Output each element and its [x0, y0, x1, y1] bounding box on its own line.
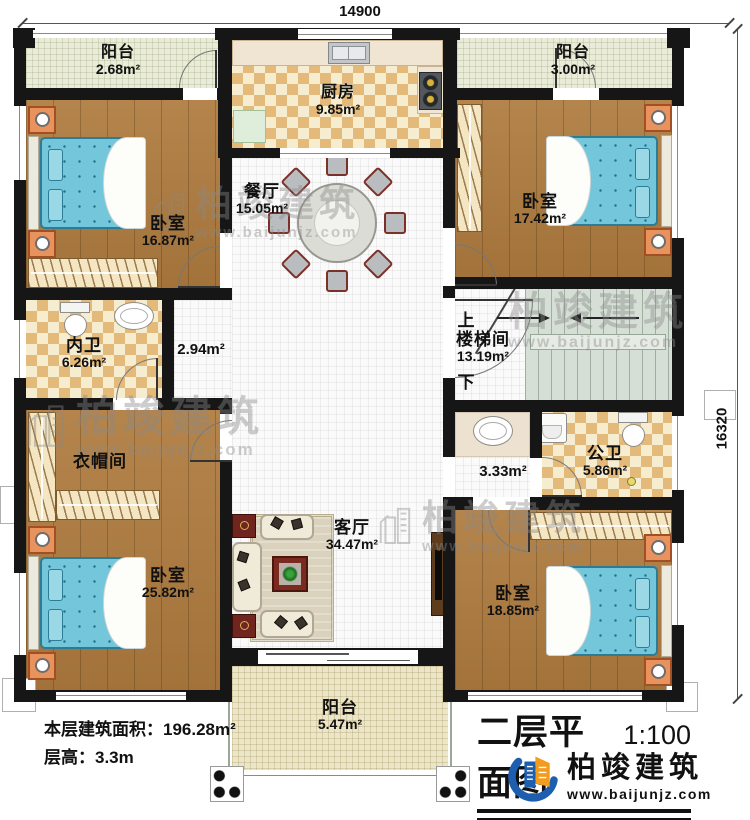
- stair-down-label: 下: [452, 368, 480, 393]
- bed-headboard: [661, 135, 672, 227]
- room-name: 阳台: [318, 698, 362, 717]
- bed-headboard: [28, 556, 39, 650]
- wall-stair-bottom: [443, 400, 684, 412]
- room-area: 3.00m²: [551, 62, 595, 78]
- closet-bedroom-tl: [28, 258, 158, 288]
- room-name: 客厅: [326, 518, 378, 537]
- room-label-dining: 餐厅 15.05m²: [236, 182, 288, 217]
- window-bedroom-bottom-right: [672, 543, 684, 625]
- window-bedroom-top-right: [672, 106, 684, 238]
- room-label-cloakroom: 衣帽间: [73, 452, 127, 471]
- opening-kitchen-dining: [280, 148, 390, 158]
- wall-bath-public-left: [530, 412, 542, 458]
- nightstand: [644, 534, 672, 562]
- stove: [419, 72, 442, 110]
- room-name: 衣帽间: [73, 452, 127, 471]
- floor-height-text: 层高：3.3m: [44, 744, 236, 772]
- room-label-balcony-tl: 阳台 2.68m²: [96, 44, 140, 78]
- door-leaf: [178, 286, 220, 288]
- stair-arrow-left: [570, 313, 581, 323]
- room-name: 厨房: [316, 84, 360, 102]
- nightstand: [644, 104, 672, 132]
- floorplan-page: { "dimensions": { "width": "14900", "hei…: [0, 0, 750, 818]
- railing-balcony-top-right: [460, 30, 667, 38]
- window-bath-public: [672, 416, 684, 490]
- room-name: 内卫: [62, 336, 106, 355]
- bed-bedroom-tl: [40, 137, 146, 229]
- balcony-bottom-railing: [232, 770, 448, 780]
- brand-url: www.baijunjz.com: [567, 787, 712, 801]
- door-leaf: [156, 358, 158, 400]
- area-label-hall-left: 2.94m²: [177, 342, 225, 359]
- room-label-bath-inner: 内卫 6.26m²: [62, 336, 106, 371]
- door-leaf: [542, 495, 582, 497]
- room-label-stairwell: 楼梯间 13.19m²: [456, 330, 510, 365]
- room-label-bedroom-tr: 卧室 17.42m²: [514, 192, 566, 227]
- room-name: 卧室: [487, 584, 539, 603]
- room-name: 餐厅: [236, 182, 288, 201]
- doorway-bedroom-tr: [443, 228, 455, 286]
- nightstand: [644, 228, 672, 256]
- kitchen-sink: [328, 42, 370, 64]
- wall-bath-inner-right: [162, 288, 174, 410]
- railing-balcony-top-left: [33, 30, 215, 38]
- nightstand: [644, 658, 672, 686]
- dimension-line-top: [22, 23, 730, 24]
- dimension-line-right: [737, 30, 738, 700]
- bed-bedroom-bl: [40, 557, 146, 649]
- window-bedroom-bottom-left: [14, 573, 26, 655]
- room-area: 6.26m²: [62, 355, 106, 371]
- doorway-balcony-tl: [183, 88, 217, 100]
- nightstand: [28, 106, 56, 134]
- plant: [282, 566, 298, 582]
- floor-area-text: 本层建筑面积：196.28m²: [44, 716, 236, 744]
- bed-headboard: [28, 136, 39, 230]
- bed-bedroom-br: [546, 566, 658, 656]
- door-leaf: [455, 284, 497, 286]
- window-kitchen: [298, 29, 392, 39]
- sink-bath-inner: [114, 302, 154, 330]
- door-leaf: [190, 460, 232, 462]
- dimension-width: 14900: [310, 3, 410, 20]
- wall-bedroom-br-left: [443, 510, 455, 702]
- room-label-living: 客厅 34.47m²: [326, 518, 378, 553]
- door-leaf: [455, 299, 533, 301]
- wall-hall-right-left: [443, 412, 455, 457]
- room-area: 2.94m²: [177, 342, 225, 359]
- closet-bedroom-tr: [457, 104, 482, 232]
- room-area: 25.82m²: [142, 585, 194, 601]
- dining-chair: [384, 212, 406, 234]
- closet-cloakroom-left: [28, 412, 56, 522]
- area-label-hall-right: 3.33m²: [479, 464, 527, 481]
- doorway-bedroom-tl: [220, 233, 232, 288]
- dimension-height: 16320: [714, 399, 731, 459]
- window-bedroom-br: [468, 692, 642, 700]
- fridge: [233, 110, 266, 143]
- room-area: 9.85m²: [316, 102, 360, 118]
- room-label-bedroom-br: 卧室 18.85m²: [487, 584, 539, 619]
- room-label-bath-public: 公卫 5.86m²: [583, 444, 627, 479]
- title-underline: [477, 809, 691, 813]
- room-area: 3.33m²: [479, 464, 527, 481]
- brand-logo-icon: [505, 747, 559, 808]
- floor-drain: [627, 477, 636, 486]
- dining-table: [297, 183, 377, 263]
- room-name: 阳台: [96, 44, 140, 62]
- brand-name: 柏竣建筑: [567, 754, 712, 783]
- side-table: [232, 614, 256, 638]
- tv: [435, 550, 442, 600]
- nightstand: [28, 526, 56, 554]
- balcony-pier-right: [436, 766, 470, 802]
- room-area: 15.05m²: [236, 201, 288, 217]
- toilet-bath-public: [618, 412, 648, 446]
- nightstand: [28, 230, 56, 258]
- door-leaf: [215, 50, 217, 88]
- bed-headboard: [661, 565, 672, 657]
- wall-bedroom-tl-bottom: [14, 288, 232, 300]
- window-bath-inner: [14, 320, 26, 378]
- room-name: 楼梯间: [456, 330, 510, 349]
- room-name: 卧室: [142, 214, 194, 233]
- brand-block: 柏竣建筑 www.baijunjz.com: [505, 747, 712, 808]
- room-area: 5.47m²: [318, 717, 362, 733]
- stair-arrow-right: [539, 313, 550, 323]
- room-label-kitchen: 厨房 9.85m²: [316, 84, 360, 118]
- side-table: [232, 514, 256, 538]
- room-label-balcony-b: 阳台 5.47m²: [318, 698, 362, 733]
- floor-info: 本层建筑面积：196.28m² 层高：3.3m: [44, 716, 236, 772]
- sliding-door-balcony: [258, 650, 418, 664]
- room-area: 5.86m²: [583, 463, 627, 479]
- room-area: 18.85m²: [487, 603, 539, 619]
- room-area: 13.19m²: [456, 349, 510, 365]
- room-name: 卧室: [142, 566, 194, 585]
- dining-chair: [326, 270, 348, 292]
- room-area: 34.47m²: [326, 537, 378, 553]
- room-area: 16.87m²: [142, 233, 194, 249]
- room-name: 卧室: [514, 192, 566, 211]
- door-leaf: [528, 510, 530, 552]
- wall-post-top-right: [667, 28, 690, 48]
- toilet-bath-inner: [60, 302, 90, 334]
- room-name: 公卫: [583, 444, 627, 463]
- room-area: 17.42m²: [514, 211, 566, 227]
- wall-post-top-left: [13, 28, 35, 48]
- sofa-loveseat: [260, 514, 314, 540]
- sink-hall: [473, 416, 513, 446]
- stair-railing: [530, 334, 666, 350]
- room-label-bedroom-bl: 卧室 25.82m²: [142, 566, 194, 601]
- closet-cloakroom-bottom: [56, 490, 160, 520]
- window-bedroom-bl: [56, 692, 186, 700]
- window-bedroom-top-left: [14, 106, 26, 180]
- stair-direction-line: [583, 317, 639, 319]
- room-area: 2.68m²: [96, 62, 140, 78]
- nightstand: [28, 652, 56, 680]
- stair-up-label: 上: [452, 306, 480, 331]
- room-label-balcony-tr: 阳台 3.00m²: [551, 44, 595, 78]
- room-label-bedroom-tl: 卧室 16.87m²: [142, 214, 194, 249]
- room-name: 阳台: [551, 44, 595, 62]
- doorway-balcony-tr: [553, 88, 599, 100]
- doorway-bedroom-br: [473, 497, 530, 510]
